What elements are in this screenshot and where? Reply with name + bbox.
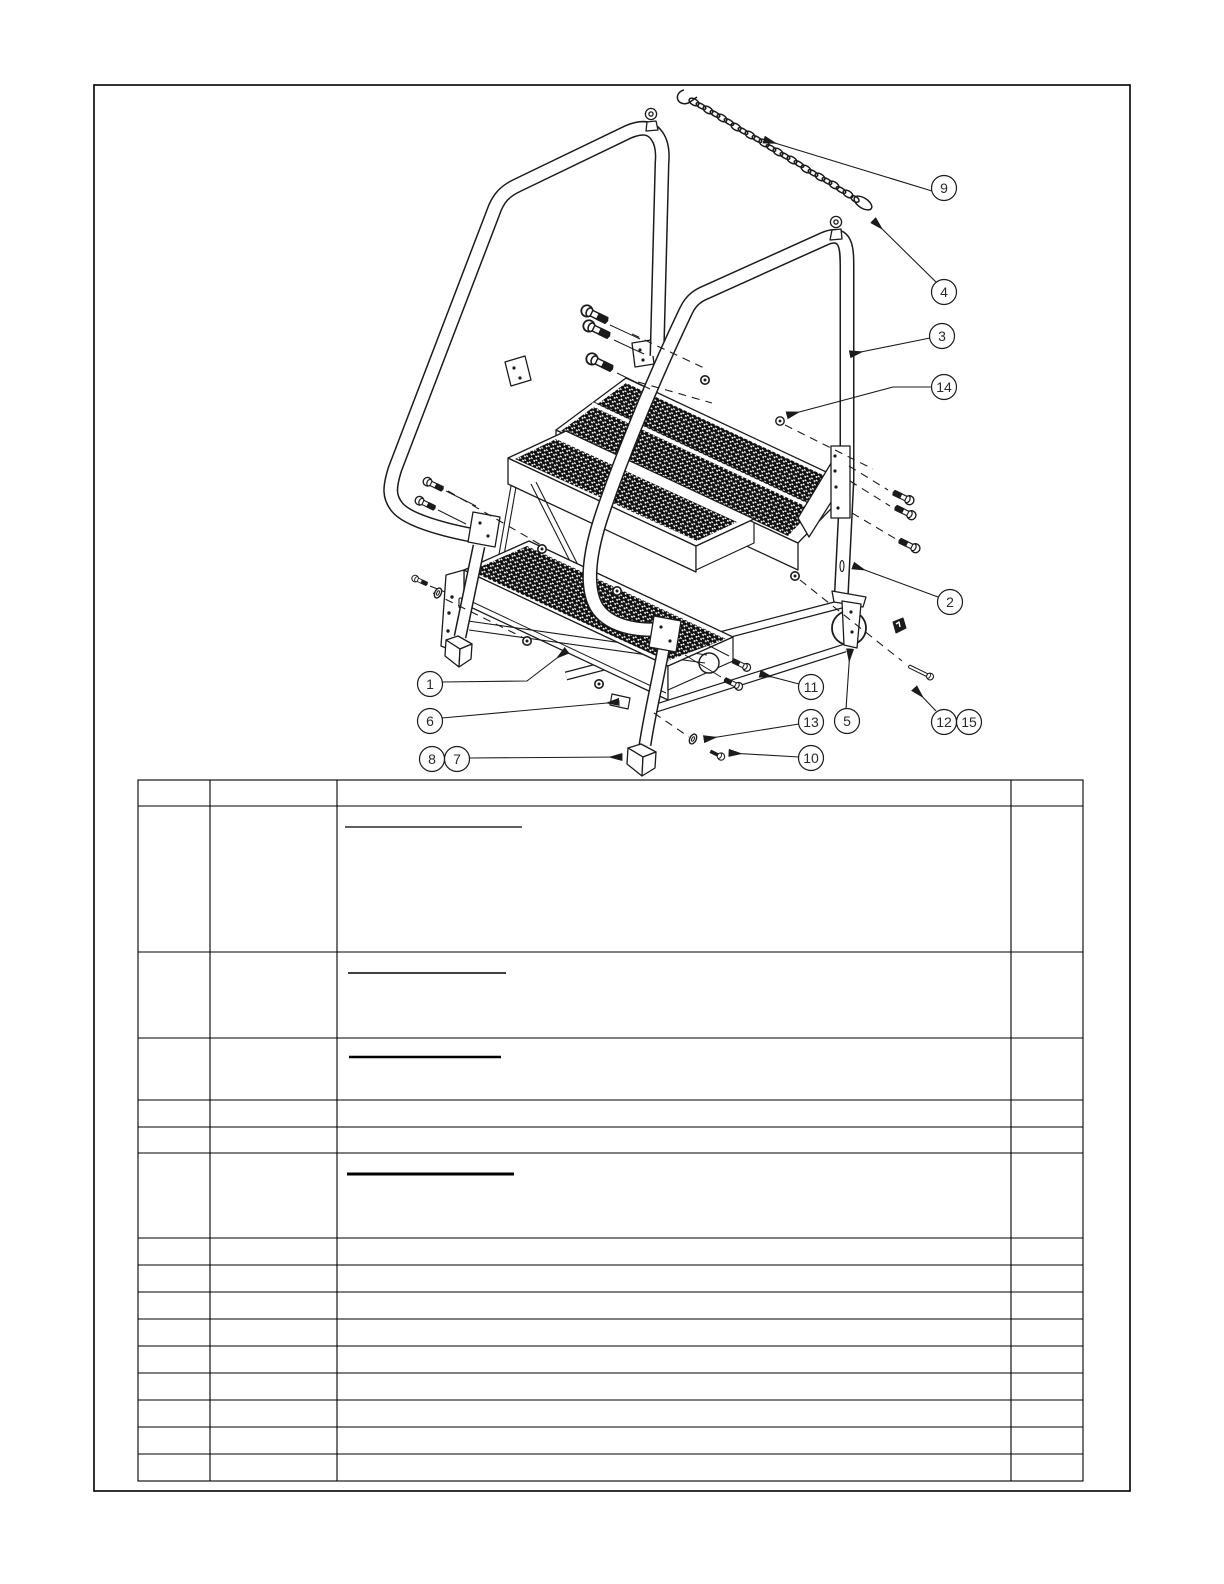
svg-text:6: 6	[426, 713, 434, 729]
svg-text:1: 1	[426, 676, 434, 692]
svg-text:8: 8	[428, 751, 436, 767]
svg-text:15: 15	[961, 714, 977, 730]
svg-text:2: 2	[946, 594, 954, 610]
svg-text:7: 7	[453, 751, 461, 767]
svg-text:3: 3	[938, 328, 946, 344]
svg-text:13: 13	[803, 714, 819, 730]
svg-text:10: 10	[803, 750, 819, 766]
svg-text:9: 9	[940, 180, 948, 196]
svg-text:5: 5	[843, 713, 851, 729]
svg-text:4: 4	[940, 284, 948, 300]
svg-text:14: 14	[936, 379, 952, 395]
svg-text:12: 12	[936, 714, 952, 730]
svg-text:11: 11	[804, 679, 819, 695]
